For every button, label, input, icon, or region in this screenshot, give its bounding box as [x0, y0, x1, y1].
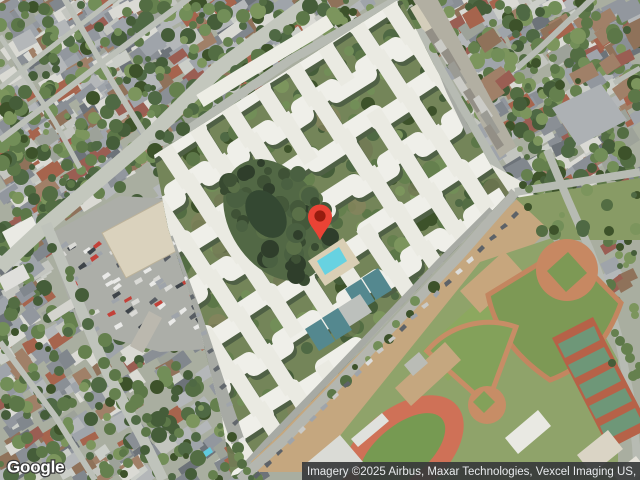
svg-text:Imagery ©2025 Airbus, Maxar Te: Imagery ©2025 Airbus, Maxar Technologies… [307, 466, 640, 478]
svg-text:Google: Google [7, 458, 64, 477]
